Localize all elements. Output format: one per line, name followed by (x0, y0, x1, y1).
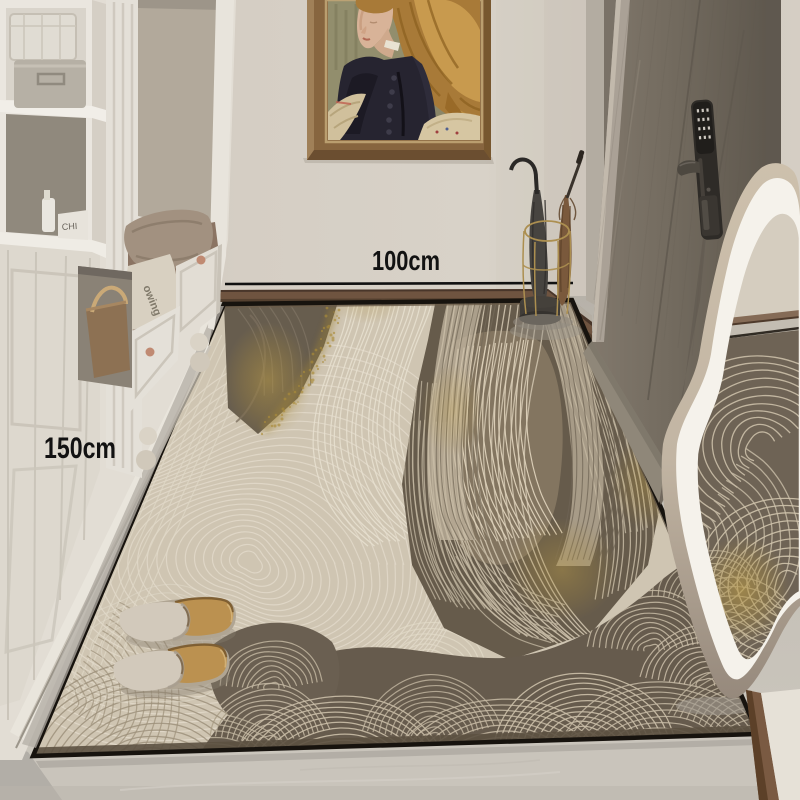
svg-text:CHI: CHI (61, 221, 77, 232)
svg-text:150cm: 150cm (44, 432, 116, 465)
svg-text:100cm: 100cm (372, 245, 440, 276)
